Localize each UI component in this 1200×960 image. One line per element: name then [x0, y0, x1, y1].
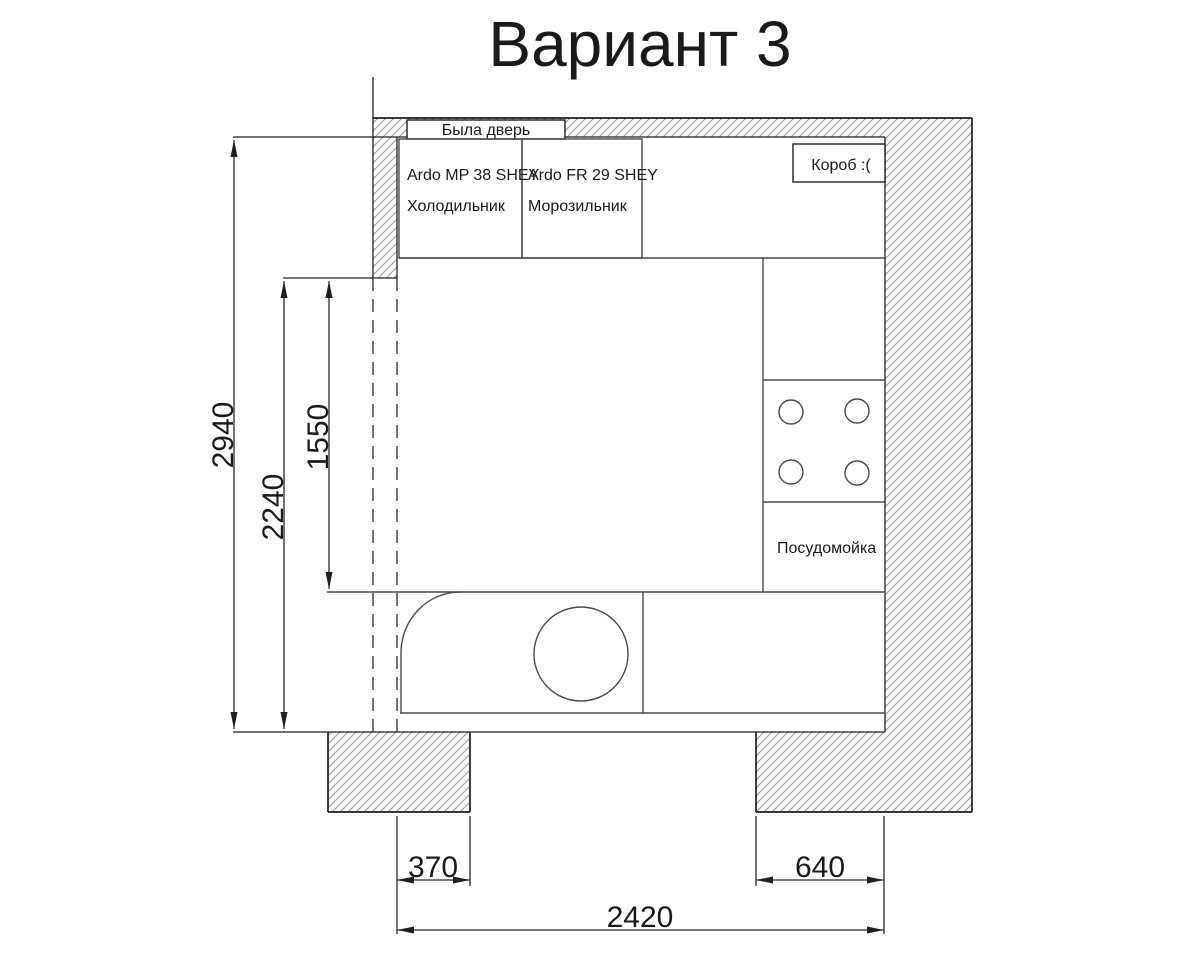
dim-label-room-width: 2420	[607, 901, 674, 934]
floor-plan-page: Вариант 3 Была дверь Ardo MP 38 SHE	[0, 0, 1200, 960]
dim-label-opening-depth: 2240	[257, 474, 290, 541]
burner-top-left	[779, 400, 803, 424]
dishwasher-label: Посудомойка	[777, 540, 876, 557]
counter-rounded-corner	[401, 592, 460, 653]
dim-label-left-pier: 370	[408, 851, 458, 884]
fridge-model-label: Ardo MP 38 SHEY	[407, 167, 540, 184]
duct-label: Короб :(	[811, 157, 871, 174]
burner-top-right	[845, 399, 869, 423]
burner-bottom-right	[845, 461, 869, 485]
walls	[328, 118, 972, 812]
dim-label-free-wall: 1550	[302, 404, 335, 471]
freezer-name-label: Морозильник	[528, 198, 628, 215]
wall-bottom-right-pier	[756, 732, 885, 812]
furniture: Ardo MP 38 SHEY Холодильник Ardo FR 29 S…	[327, 139, 885, 713]
page-title: Вариант 3	[488, 8, 791, 80]
former-door-label: Была дверь	[442, 122, 530, 139]
wall-outlines	[233, 77, 972, 812]
fridge-name-label: Холодильник	[407, 198, 506, 215]
cooktop-burners	[779, 399, 869, 485]
freezer-model-label: Ardo FR 29 SHEY	[528, 167, 658, 184]
wall-right	[885, 137, 972, 812]
wall-left-stub	[373, 137, 397, 278]
former-door: Была дверь	[407, 120, 565, 139]
sink-circle	[534, 607, 628, 701]
wall-bottom-left-pier	[328, 732, 470, 812]
dim-label-room-depth: 2940	[207, 402, 240, 469]
burner-bottom-left	[779, 460, 803, 484]
dim-label-right-pier: 640	[795, 851, 845, 884]
kitchen-plan-drawing: Вариант 3 Была дверь Ardo MP 38 SHE	[0, 0, 1200, 960]
dimensions: 2940 2240 1550 370 640 2420	[207, 140, 884, 934]
